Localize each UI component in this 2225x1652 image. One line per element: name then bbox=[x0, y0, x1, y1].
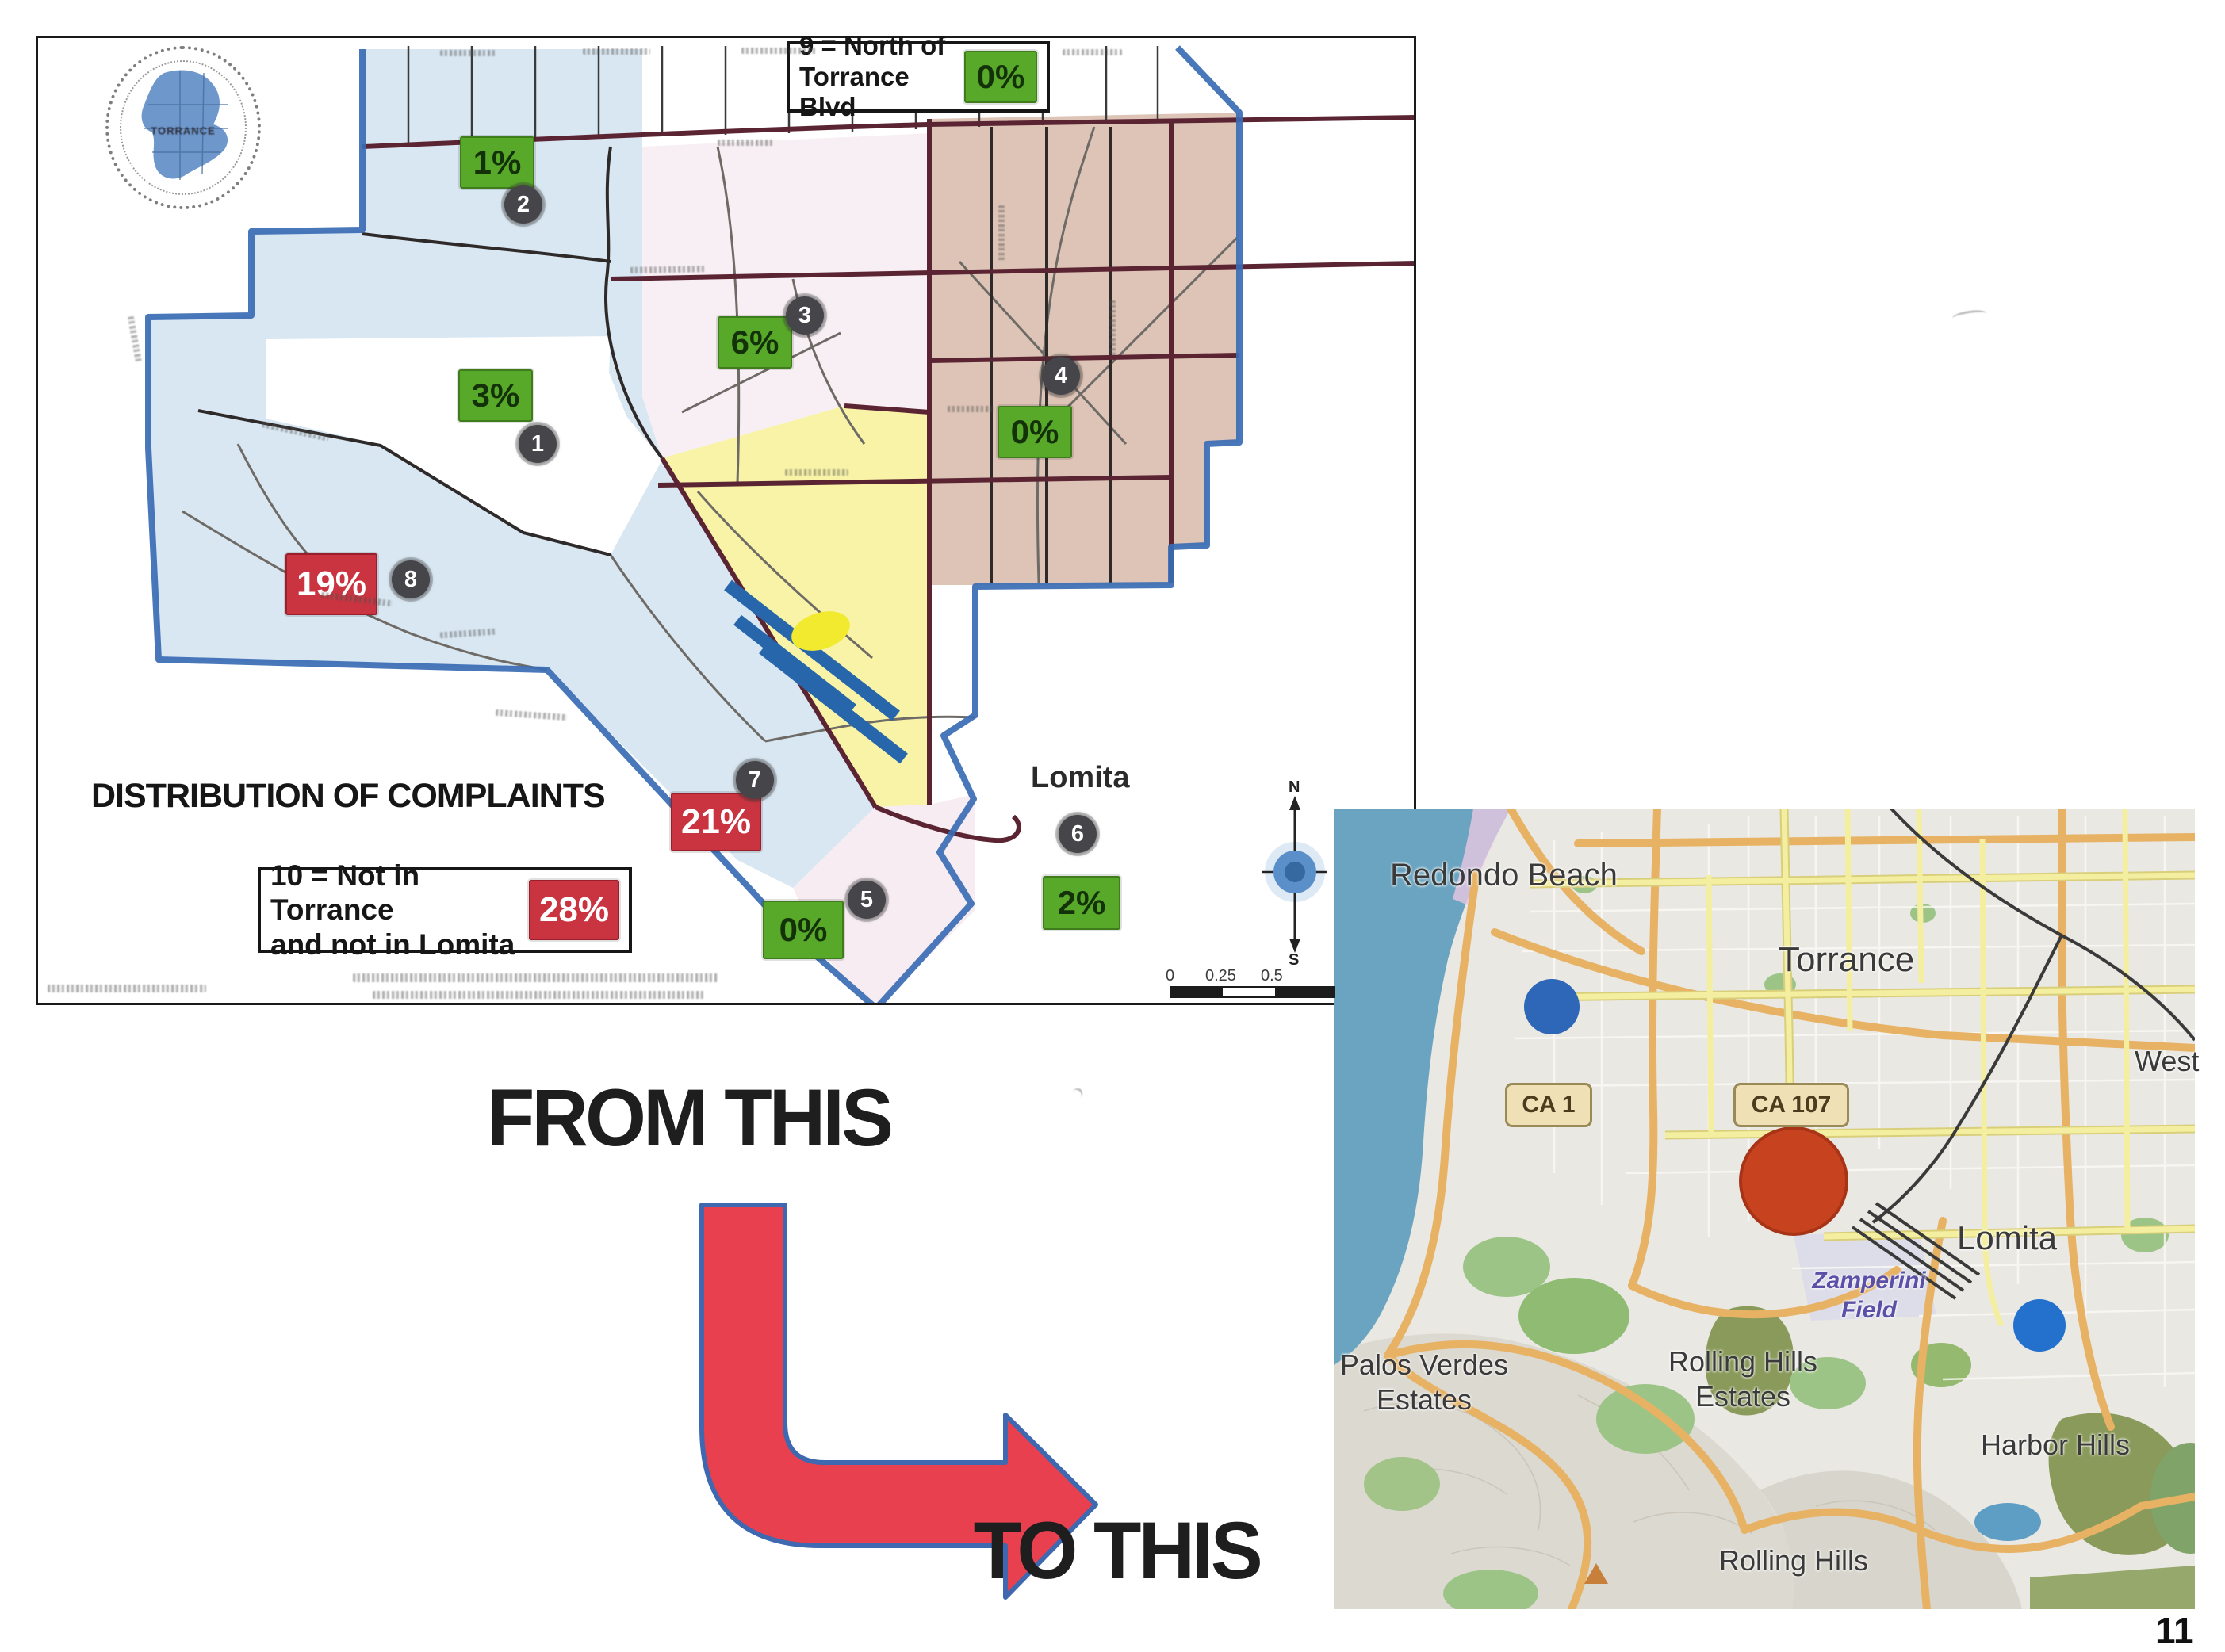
district-marker-6: 6 bbox=[1059, 815, 1097, 853]
zamperini-line2: Field bbox=[1794, 1296, 1944, 1325]
street-name-smudge bbox=[741, 48, 817, 54]
from-this-label: FROM THIS bbox=[487, 1072, 890, 1164]
street-name-smudge bbox=[948, 406, 995, 412]
map2-label-lomita: Lomita bbox=[1957, 1219, 2057, 1257]
pve-line2: Estates bbox=[1337, 1382, 1511, 1417]
map2-label-torrance: Torrance bbox=[1779, 940, 1914, 980]
scale-label-05: 0.5 bbox=[1261, 967, 1283, 985]
district-marker-3: 3 bbox=[786, 296, 824, 335]
map2-vector bbox=[1334, 809, 2225, 1617]
map2-label-west: West bbox=[2135, 1045, 2199, 1078]
badge-district6: 2% bbox=[1043, 876, 1120, 930]
to-this-label: TO THIS bbox=[974, 1505, 1260, 1597]
badge-district1: 3% bbox=[458, 369, 533, 422]
map1-footnote-smudge bbox=[373, 991, 706, 999]
map2-red-circle bbox=[1741, 1128, 1847, 1234]
rhe-line1: Rolling Hills bbox=[1648, 1344, 1838, 1379]
compass-north-label: N bbox=[1289, 778, 1300, 797]
ca107-route-shield: CA 107 bbox=[1733, 1083, 1849, 1127]
street-name-smudge bbox=[718, 140, 773, 146]
badge-district5: 0% bbox=[763, 901, 844, 959]
map1-footnote-smudge bbox=[353, 973, 718, 982]
map2-blue-dot-west bbox=[1524, 979, 1580, 1034]
district-marker-7: 7 bbox=[736, 761, 774, 799]
badge-district2: 1% bbox=[460, 136, 534, 189]
page-number: 11 bbox=[2155, 1609, 2194, 1652]
street-name-smudge bbox=[630, 266, 706, 273]
street-name-smudge bbox=[1063, 49, 1122, 55]
district-marker-2: 2 bbox=[504, 185, 542, 224]
street-name-smudge bbox=[998, 205, 1005, 261]
badge-district8: 19% bbox=[285, 553, 377, 615]
badge-district7: 21% bbox=[671, 793, 761, 851]
badge-district9: 0% bbox=[964, 51, 1037, 103]
scanned-slide: { "map1": { "title": "DISTRIBUTION OF CO… bbox=[0, 0, 2225, 1628]
district-marker-4: 4 bbox=[1042, 357, 1080, 395]
torrance-city-seal: TORRANCE bbox=[105, 46, 261, 209]
map2-label-rolling-hills: Rolling Hills bbox=[1719, 1544, 1868, 1577]
pve-line1: Palos Verdes bbox=[1337, 1348, 1511, 1382]
map2-label-palos-verdes-estates: Palos Verdes Estates bbox=[1337, 1348, 1511, 1417]
lomita-label: Lomita bbox=[1031, 761, 1130, 795]
seal-label: TORRANCE bbox=[151, 124, 215, 136]
legend-box-district10: 10 = Not in Torrance and not in Lomita 2… bbox=[258, 867, 632, 953]
badge-district4: 0% bbox=[998, 406, 1072, 458]
badge-district10: 28% bbox=[529, 880, 619, 940]
district-marker-1: 1 bbox=[519, 425, 557, 463]
street-name-smudge bbox=[1109, 300, 1116, 356]
map2-label-redondo-beach: Redondo Beach bbox=[1390, 858, 1618, 893]
district-marker-5: 5 bbox=[848, 881, 886, 919]
note9-line2: Torrance Blvd bbox=[799, 62, 953, 124]
rhe-line2: Estates bbox=[1648, 1379, 1838, 1414]
map1-title: DISTRIBUTION OF COMPLAINTS bbox=[91, 777, 605, 816]
note10-line2: and not in Lomita bbox=[270, 927, 518, 962]
scale-bar bbox=[1170, 986, 1335, 998]
scale-label-025: 0.25 bbox=[1205, 967, 1236, 985]
scale-label-0: 0 bbox=[1166, 967, 1174, 985]
compass-south-label: S bbox=[1289, 951, 1299, 969]
map2-label-harbor-hills: Harbor Hills bbox=[1981, 1428, 2130, 1462]
district-marker-8: 8 bbox=[392, 560, 430, 598]
zamperini-line1: Zamperini bbox=[1794, 1267, 1944, 1296]
badge-district3: 6% bbox=[718, 316, 792, 369]
street-name-smudge bbox=[785, 469, 848, 476]
map2-label-rolling-hills-estates: Rolling Hills Estates bbox=[1648, 1344, 1838, 1414]
note10-line1: 10 = Not in Torrance bbox=[270, 859, 518, 927]
ca1-route-shield: CA 1 bbox=[1505, 1083, 1592, 1127]
map1-footnote-smudge bbox=[48, 985, 206, 992]
note9-line1: 9 = North of bbox=[799, 31, 953, 62]
street-name-smudge bbox=[440, 50, 496, 56]
map2-blue-dot-east bbox=[2013, 1299, 2066, 1352]
map2-label-zamperini-field: Zamperini Field bbox=[1794, 1267, 1944, 1325]
legend-box-district9: 9 = North of Torrance Blvd 0% bbox=[787, 41, 1050, 113]
street-name-smudge bbox=[583, 48, 650, 55]
